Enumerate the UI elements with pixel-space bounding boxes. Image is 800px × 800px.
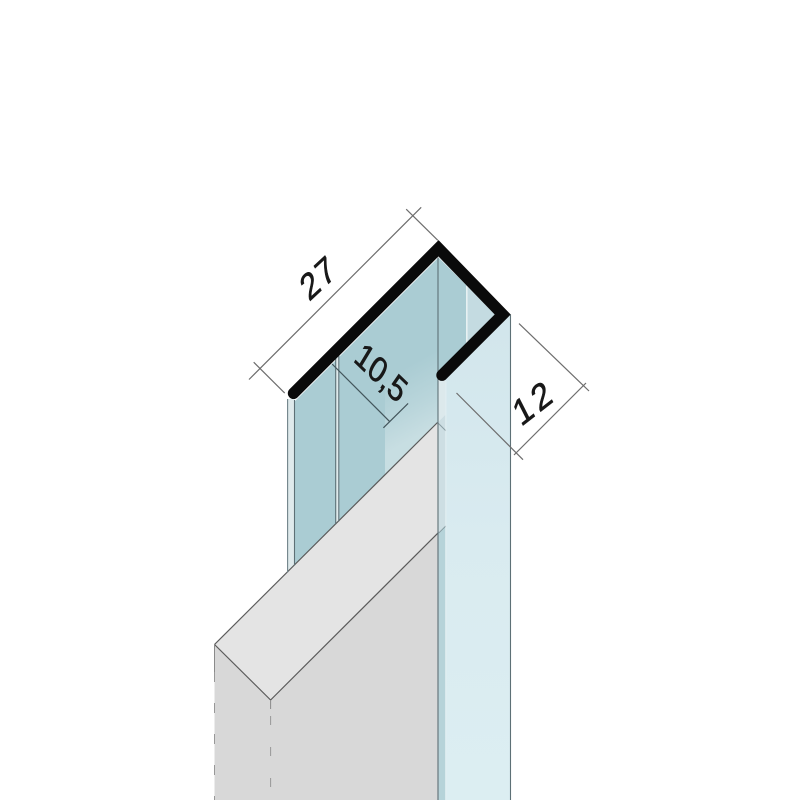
svg-text:27: 27 bbox=[294, 247, 343, 309]
svg-text:12: 12 bbox=[507, 371, 561, 435]
